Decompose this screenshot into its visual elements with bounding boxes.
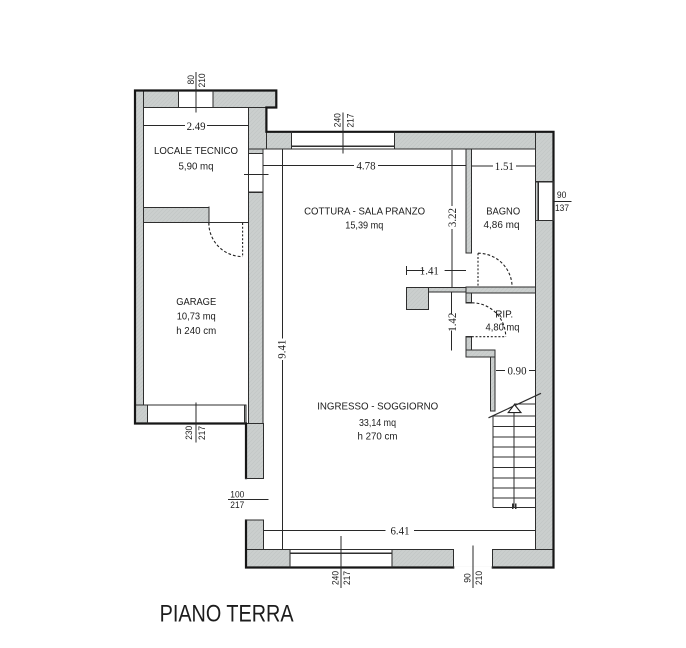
svg-text:1.42: 1.42 [445, 313, 459, 332]
svg-text:PIANO TERRA: PIANO TERRA [160, 601, 294, 628]
svg-text:0.90: 0.90 [508, 364, 527, 378]
svg-text:100: 100 [230, 490, 244, 500]
svg-text:LOCALE TECNICO: LOCALE TECNICO [154, 145, 238, 157]
svg-text:210: 210 [197, 73, 207, 87]
svg-text:4,80 mq: 4,80 mq [486, 322, 520, 334]
svg-text:10,73 mq: 10,73 mq [177, 311, 216, 323]
svg-text:GARAGE: GARAGE [176, 296, 216, 308]
svg-text:BAGNO: BAGNO [486, 205, 520, 217]
svg-text:4.78: 4.78 [357, 159, 376, 173]
svg-text:80: 80 [186, 75, 196, 85]
svg-text:9.41: 9.41 [274, 340, 288, 359]
svg-text:6.41: 6.41 [391, 524, 410, 538]
svg-text:217: 217 [197, 426, 207, 440]
svg-text:90: 90 [463, 573, 473, 583]
svg-text:1.41: 1.41 [420, 263, 439, 277]
svg-text:2.49: 2.49 [187, 119, 206, 133]
svg-text:h 270 cm: h 270 cm [358, 431, 398, 443]
svg-text:4,86 mq: 4,86 mq [484, 219, 520, 231]
svg-text:230: 230 [184, 426, 194, 440]
svg-text:217: 217 [342, 571, 352, 585]
svg-text:3.22: 3.22 [445, 208, 459, 227]
svg-text:INGRESSO - SOGGIORNO: INGRESSO - SOGGIORNO [317, 401, 438, 413]
svg-text:137: 137 [555, 203, 569, 213]
svg-text:RIP.: RIP. [495, 309, 513, 321]
svg-text:33,14 mq: 33,14 mq [359, 417, 396, 429]
svg-text:90: 90 [557, 190, 567, 200]
svg-text:COTTURA - SALA PRANZO: COTTURA - SALA PRANZO [304, 206, 425, 218]
svg-text:h 240 cm: h 240 cm [176, 325, 216, 337]
svg-text:210: 210 [474, 571, 484, 585]
svg-text:217: 217 [230, 500, 244, 510]
svg-text:1.51: 1.51 [495, 159, 514, 173]
svg-text:217: 217 [346, 114, 356, 128]
svg-text:240: 240 [332, 113, 342, 127]
svg-text:15,39 mq: 15,39 mq [345, 220, 383, 232]
svg-text:5,90 mq: 5,90 mq [179, 160, 214, 172]
svg-text:240: 240 [331, 571, 341, 585]
